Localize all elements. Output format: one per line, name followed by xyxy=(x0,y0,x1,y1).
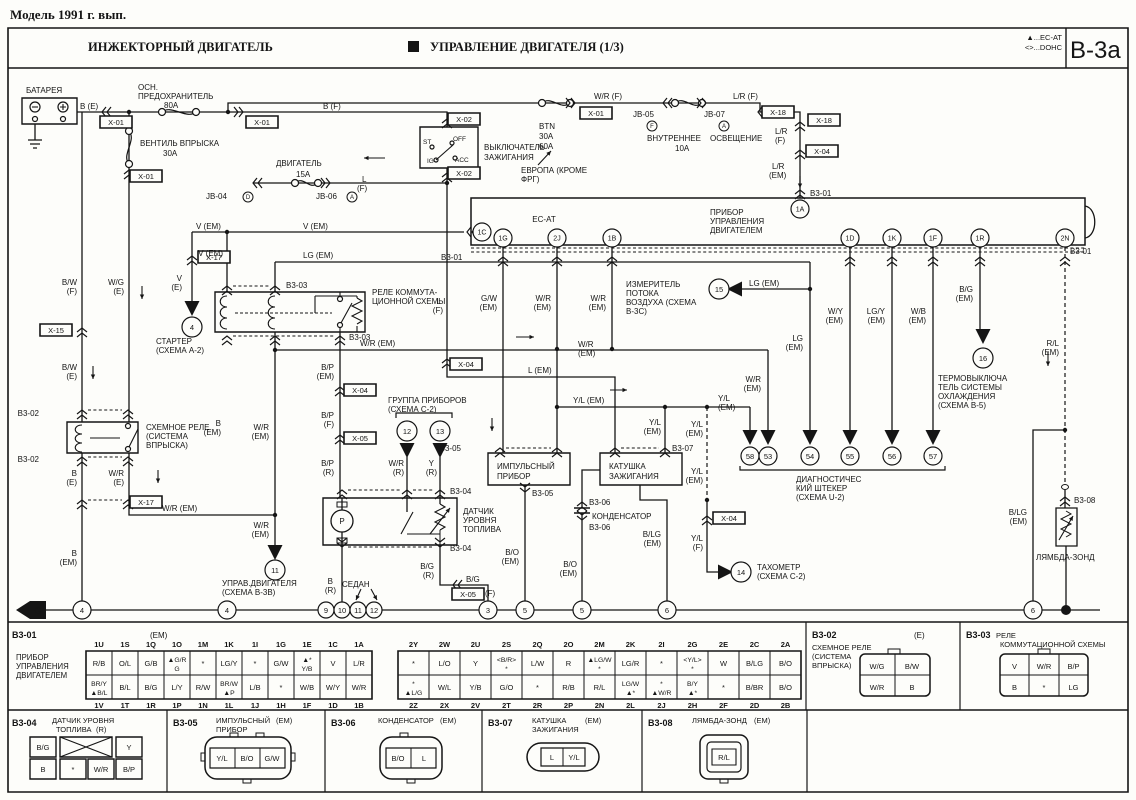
flow-triangle-icon xyxy=(843,430,858,445)
wire-label: (СХЕМА B-5) xyxy=(938,401,986,410)
pin-id: 2E xyxy=(719,640,728,649)
table-device-name: УПРАВЛЕНИЯ xyxy=(16,662,69,671)
pin-id: 1O xyxy=(172,640,182,649)
wire-color-cell: * xyxy=(660,659,663,668)
connector-pinout-tables: B3-01(EM)ПРИБОРУПРАВЛЕНИЯДВИГАТЕЛЕМ1U1S1… xyxy=(12,630,1106,783)
table-device-name: ИМПУЛЬСНЫЙ xyxy=(216,716,270,725)
wire-color-cell: Y/L xyxy=(216,754,227,763)
wire-label: 80A xyxy=(164,101,179,110)
table-device-name: ВПРЫСКА) xyxy=(812,661,852,670)
wire-color-cell: LG/W xyxy=(622,681,640,688)
wire-label: W/Y xyxy=(828,307,844,316)
wire-label: ВЕНТИЛЬ ВПРЫСКА xyxy=(140,139,220,148)
flow-triangle-icon xyxy=(743,430,758,445)
table-code: B3-04 xyxy=(12,718,37,728)
wire-label: ЕВРОПА (КРОМЕ xyxy=(521,166,587,175)
wire-color-cell: * xyxy=(412,659,415,668)
wire-color-cell: O/L xyxy=(119,659,131,668)
wire-label: JB-04 xyxy=(206,192,227,201)
wire-color-cell: L/B xyxy=(249,683,260,692)
wire-label: РЕЛЕ КОММУТА- xyxy=(372,288,438,297)
wire-label: (E) xyxy=(66,372,77,381)
wire-color-cell: R xyxy=(566,659,572,668)
ground-point-number: 4 xyxy=(225,606,229,615)
wire-label: EC-AT xyxy=(532,215,556,224)
wire-label: 30A xyxy=(539,132,554,141)
direction-arrow-icon xyxy=(140,294,144,299)
wire-label: (EM) xyxy=(252,432,270,441)
direction-arrow-icon xyxy=(91,374,95,379)
ecu-pin-label: 1B xyxy=(608,236,617,243)
junction-dot xyxy=(610,347,614,351)
ecu-pin-label: 1A xyxy=(796,207,805,214)
wire-label: Y xyxy=(429,459,435,468)
wire-label: (EM) xyxy=(480,303,498,312)
wire-label: ПРЕДОХРАНИТЕЛЬ xyxy=(138,92,213,101)
wire-label: (EM) xyxy=(769,171,787,180)
wire-label: (EM) xyxy=(686,476,704,485)
wire-label: B xyxy=(72,549,77,558)
wire-color-cell: ▲L/G xyxy=(405,690,423,697)
wire-color-cell: B xyxy=(909,683,914,692)
table-code: B3-02 xyxy=(812,630,837,640)
table-code: B3-07 xyxy=(488,718,513,728)
wire-label: 30A xyxy=(163,149,178,158)
wire-label: W/R xyxy=(253,423,269,432)
wire-color-cell: B/O xyxy=(392,754,405,763)
wire-color-cell: V xyxy=(330,659,335,668)
ecu-pin-label: 2N xyxy=(1061,236,1070,243)
junction-dot xyxy=(273,513,277,517)
pin-id: 1T xyxy=(121,701,130,710)
wire-label: P xyxy=(339,517,344,526)
wire-color-cell: LG/R xyxy=(622,659,640,668)
pin-id: 1C xyxy=(328,640,338,649)
wire-color-cell: ▲B/L xyxy=(91,690,108,697)
wire-label: B/G xyxy=(959,285,973,294)
resistor-icon xyxy=(352,298,362,324)
junction-dot xyxy=(705,498,709,502)
wire-label: B3-04 xyxy=(450,487,472,496)
wire-label: (E) xyxy=(171,283,182,292)
ecu-pin-label: 1C xyxy=(478,230,487,237)
wire-color-cell: BR/W xyxy=(220,681,238,688)
wire-label: Y/L xyxy=(718,394,731,403)
wire-label: LG xyxy=(792,334,803,343)
wire-label: G/W xyxy=(481,294,497,303)
table-suffix: (EM) xyxy=(276,716,293,725)
wire-color-cell: B/G xyxy=(145,683,158,692)
wire-label: (R) xyxy=(426,468,437,477)
wire-label: (EM) xyxy=(317,372,335,381)
wire-label: JB-06 xyxy=(316,192,337,201)
pin-id: 1R xyxy=(146,701,156,710)
wire-color-cell: G/O xyxy=(500,683,514,692)
wire-color-cell: B/P xyxy=(1067,662,1079,671)
inline-connector-label: X-04 xyxy=(721,514,737,523)
pin-id: 2A xyxy=(781,640,791,649)
ground-point-number: 4 xyxy=(80,606,84,615)
wire-label: (F) xyxy=(693,543,704,552)
legend-dohc: <>...DOHC xyxy=(1025,43,1063,52)
junction-block-letter: A xyxy=(350,195,354,201)
table-suffix: (EM) xyxy=(150,631,168,640)
wire-color-cell: * xyxy=(505,666,508,673)
junction-block-letter: A xyxy=(722,124,726,130)
ecu-pin-label: 1R xyxy=(976,236,985,243)
table-device-name: ПРИБОР xyxy=(16,653,49,662)
inline-connector-label: X-05 xyxy=(460,590,476,599)
wire-color-cell: R/B xyxy=(93,659,106,668)
flow-triangle-icon xyxy=(400,443,415,458)
wire-label: B3-04 xyxy=(450,544,472,553)
ground-point-number: 9 xyxy=(324,606,328,615)
junction-block-letter: F xyxy=(650,124,654,130)
wiring-diagram: Модель 1991 г. вып. ИНЖЕКТОРНЫЙ ДВИГАТЕЛ… xyxy=(0,0,1136,800)
direction-arrow-icon xyxy=(490,426,494,431)
wire-label: B3-03 xyxy=(286,281,308,290)
wire-label: B (F) xyxy=(323,102,341,111)
inline-connector-label: X-04 xyxy=(458,360,474,369)
ecu-pin-label: 1D xyxy=(846,236,855,243)
pin-id: 2C xyxy=(750,640,760,649)
wire-label: B3-06 xyxy=(589,523,611,532)
wire-color-cell: B/BR xyxy=(746,683,764,692)
wire-color-cell: B/O xyxy=(779,659,792,668)
pin-id: 1I xyxy=(252,640,258,649)
pin-id: 2J xyxy=(657,701,665,710)
wire-color-cell: B/O xyxy=(241,754,254,763)
wire-label: OFF xyxy=(453,136,466,143)
junction-dot xyxy=(663,405,667,409)
flow-triangle-icon xyxy=(761,430,776,445)
pin-id: 1A xyxy=(354,640,364,649)
pin-id: 1V xyxy=(94,701,103,710)
wire-color-cell: ▲LG/W xyxy=(587,657,612,664)
wire-color-cell: B/L xyxy=(119,683,130,692)
wire-label: B/LG xyxy=(1009,508,1027,517)
wire-label: B/P xyxy=(321,411,334,420)
wire-color-cell: ▲P xyxy=(223,690,235,697)
inline-connector-label: X-17 xyxy=(138,498,154,507)
wire-label: B (E) xyxy=(80,102,99,111)
scanned-wiring-diagram-page: Модель 1991 г. вып. ИНЖЕКТОРНЫЙ ДВИГАТЕЛ… xyxy=(0,0,1136,800)
wire-label: ДИАГНОСТИЧЕС xyxy=(796,475,862,484)
pin-id: 2W xyxy=(439,640,451,649)
wire-label: (EM) xyxy=(204,428,222,437)
wire-color-cell: G/W xyxy=(274,659,290,668)
wire-color-cell: L/Y xyxy=(171,683,182,692)
pin-id: 1E xyxy=(302,640,311,649)
connector-chevron-icon xyxy=(123,457,133,466)
wire-label: LG (EM) xyxy=(749,279,780,288)
table-suffix: (R) xyxy=(96,725,107,734)
wire-label: (СИСТЕМА xyxy=(146,432,189,441)
wire-color-cell: W xyxy=(720,659,728,668)
table-device-name: КОММУТАЦИОННОЙ СХЕМЫ xyxy=(1000,640,1106,649)
inline-connector-label: X-18 xyxy=(770,108,786,117)
wire-label: V xyxy=(177,274,183,283)
wire-label: (F) xyxy=(324,420,335,429)
wire-color-cell: L xyxy=(550,753,554,762)
ground-tag-label: G xyxy=(34,606,41,616)
pin-id: 1S xyxy=(120,640,129,649)
wire-color-cell: <Y/L> xyxy=(683,657,701,664)
table-device-name: ЗАЖИГАНИЯ xyxy=(532,725,579,734)
pin-id: 2K xyxy=(626,640,636,649)
wire-label: УРОВНЯ xyxy=(463,516,497,525)
direction-arrow-icon xyxy=(529,335,534,339)
wire-color-cell: <B/R> xyxy=(497,657,516,664)
table-device-name: СХЕМНОЕ РЕЛЕ xyxy=(812,643,872,652)
table-device-name: ДВИГАТЕЛЕМ xyxy=(16,671,67,680)
terminal-circle xyxy=(126,424,131,429)
pin-id: 2U xyxy=(471,640,481,649)
table-code: B3-06 xyxy=(331,718,356,728)
wire-label: (EM) xyxy=(1010,517,1028,526)
terminal-circle xyxy=(33,117,38,122)
wire-label: УПРАВЛЕНИЯ xyxy=(710,217,764,226)
wire-label: L (EM) xyxy=(528,366,552,375)
wire-label: B xyxy=(328,577,333,586)
wire-label: ТОПЛИВА xyxy=(463,525,502,534)
pin-id: 1U xyxy=(94,640,104,649)
inline-connector-label: X-01 xyxy=(138,172,154,181)
junction-dot xyxy=(555,405,559,409)
ecu-pin-label: 2J xyxy=(553,236,560,243)
wire-label: B/O xyxy=(563,560,577,569)
table-device-name: РЕЛЕ xyxy=(996,631,1016,640)
wire-label: Y/L (EM) xyxy=(573,396,605,405)
wire-color-cell: R/W xyxy=(196,683,212,692)
wire-label: W/R xyxy=(745,375,761,384)
wire-label: 10A xyxy=(675,144,690,153)
pin-id: 1M xyxy=(198,640,208,649)
wire-label: (EM) xyxy=(744,384,762,393)
wire-color-cell: * xyxy=(202,659,205,668)
wire-color-cell: B/LG xyxy=(746,659,763,668)
inline-connector-label: X-02 xyxy=(456,169,472,178)
wire-label: Y/L xyxy=(691,534,704,543)
wire-color-cell: W/R xyxy=(94,765,109,774)
wire-label: (EM) xyxy=(60,558,78,567)
junction-dot xyxy=(705,405,709,409)
wire-label: ИМПУЛЬСНЫЙ xyxy=(497,462,555,471)
wire-color-cell: G xyxy=(174,666,179,673)
wire-label: ПРИБОР xyxy=(710,208,744,217)
wire-label: ЗАЖИГАНИЯ xyxy=(609,472,659,481)
wire-label: (EM) xyxy=(252,530,270,539)
pin-id: 1P xyxy=(172,701,181,710)
wire-label: ДАТЧИК xyxy=(463,507,494,516)
table-device-name: ДАТЧИК УРОВНЯ xyxy=(52,716,114,725)
wire-color-cell: V xyxy=(1012,662,1017,671)
wire-label: (EM) xyxy=(786,343,804,352)
wire-label: (СХЕМА A-2) xyxy=(156,346,204,355)
wire-color-cell: B/P xyxy=(123,765,135,774)
wire-color-cell: Y/B xyxy=(302,666,313,673)
wire-color-cell: W/R xyxy=(352,683,367,692)
wire-label: B/W xyxy=(62,278,78,287)
wire-color-cell: Y xyxy=(126,743,131,752)
wire-color-cell: Y/B xyxy=(469,683,481,692)
wire-label: W/R (EM) xyxy=(162,504,197,513)
wire-color-cell: LG/Y xyxy=(220,659,237,668)
wire-label: ДВИГАТЕЛЕМ xyxy=(710,226,763,235)
wire-label: (EM) xyxy=(560,569,578,578)
ground-icon xyxy=(28,140,42,148)
wire-label: (EM) xyxy=(1042,348,1060,357)
section-title-center: УПРАВЛЕНИЕ ДВИГАТЕЛЯ (1/3) xyxy=(430,40,624,54)
wire-color-cell: L/O xyxy=(438,659,450,668)
wire-color-cell: * xyxy=(660,681,663,688)
wire-label: JB-07 xyxy=(704,110,725,119)
pin-id: 1Q xyxy=(146,640,156,649)
wire-color-cell: W/Y xyxy=(326,683,340,692)
pin-id: 2M xyxy=(594,640,604,649)
flow-triangle-icon xyxy=(268,545,283,560)
wire-label: B3-01 xyxy=(810,189,832,198)
wire-label: 15A xyxy=(296,170,311,179)
wire-label: (EM) xyxy=(868,316,886,325)
wire-label: B3-05 xyxy=(440,444,462,453)
wire-color-cell: R/L xyxy=(718,753,730,762)
wire-color-cell: ▲G/R xyxy=(168,657,187,664)
inline-connector-label: X-01 xyxy=(254,118,270,127)
ground-point-number: 11 xyxy=(354,606,362,615)
wire-label: (F) xyxy=(357,184,368,193)
wire-color-cell: ▲* xyxy=(626,690,636,697)
pin-id: 2N xyxy=(595,701,605,710)
ecu-pin-label: 1K xyxy=(888,236,897,243)
wire-label: (EM) xyxy=(718,403,736,412)
wire-label: W/R xyxy=(253,521,269,530)
wire-color-cell: * xyxy=(72,765,75,774)
wire-color-cell: G/W xyxy=(265,754,281,763)
wire-color-cell: ▲W/R xyxy=(652,690,672,697)
wire-label: КОНДЕНСАТОР xyxy=(592,512,652,521)
section-bullet xyxy=(408,41,419,52)
wire-label: (R) xyxy=(325,586,336,595)
junction-dot xyxy=(555,347,559,351)
wire-label: ОХЛАЖДЕНИЯ xyxy=(938,392,995,401)
inline-connector-label: X-02 xyxy=(456,115,472,124)
wire-label: СЕДАН xyxy=(342,580,370,589)
callout-number: 12 xyxy=(403,427,411,436)
inline-connector-label: X-01 xyxy=(108,118,124,127)
wire-label: B/LG xyxy=(643,530,661,539)
pin-id: 2T xyxy=(502,701,511,710)
pin-id: 2G xyxy=(687,640,697,649)
terminal-circle xyxy=(126,161,133,168)
junction-dot xyxy=(1063,428,1067,432)
wire xyxy=(315,292,357,332)
wire-label: ФРГ) xyxy=(521,175,540,184)
table-device-name: КОНДЕНСАТОР xyxy=(378,716,434,725)
wire-label: (E) xyxy=(66,478,77,487)
wire-label: ДВИГАТЕЛЬ xyxy=(276,159,322,168)
callout-number: 57 xyxy=(929,452,937,461)
pin-id: 2Y xyxy=(409,640,418,649)
wire-label: (EM) xyxy=(589,303,607,312)
terminal-circle xyxy=(338,297,343,302)
junction-block-letter: D xyxy=(246,195,251,201)
terminal-circle xyxy=(193,109,200,116)
wire-label: W/B xyxy=(911,307,926,316)
inline-connector-label: X-18 xyxy=(816,116,832,125)
wire-label: B/W xyxy=(62,363,78,372)
terminal-circle xyxy=(539,100,546,107)
wire-label: Y/L xyxy=(649,418,662,427)
pin-id: 1B xyxy=(354,701,364,710)
wire-color-cell: W/G xyxy=(870,662,885,671)
flow-triangle-icon xyxy=(885,430,900,445)
wire-label: (E) xyxy=(113,478,124,487)
wire-label: W/R (EM) xyxy=(360,339,395,348)
wire-label: ЦИОННОЙ СХЕМЫ xyxy=(372,297,445,306)
wire-label: ТАХОМЕТР xyxy=(757,563,800,572)
wire-label: W/R xyxy=(578,340,594,349)
wire-label: (F) xyxy=(67,287,78,296)
wire-color-cell: * xyxy=(1043,683,1046,692)
ground-point-number: 6 xyxy=(665,606,669,615)
relay-coil-icon xyxy=(75,425,82,452)
wire xyxy=(407,530,440,545)
table-suffix: (EM) xyxy=(585,716,602,725)
wire-color-cell: * xyxy=(254,659,257,668)
callout-number: 11 xyxy=(271,566,279,575)
ecu-pin-label: 1F xyxy=(929,236,937,243)
wire-label: B3-08 xyxy=(1074,496,1096,505)
wire-label: B3-02 xyxy=(18,455,40,464)
wire-label: B/P xyxy=(321,459,334,468)
wire-label: B/G xyxy=(466,575,480,584)
pin-id: 1L xyxy=(225,701,234,710)
table-device-name: (СИСТЕМА xyxy=(812,652,851,661)
junction-dot xyxy=(808,287,812,291)
junction-dot xyxy=(226,110,230,114)
wire-color-cell: BR/Y xyxy=(91,681,107,688)
wire-label: B xyxy=(216,419,221,428)
pin-id: 2Q xyxy=(532,640,542,649)
wire-label: ВОЗДУХА (СХЕМА xyxy=(626,298,697,307)
callout-number: 15 xyxy=(715,285,723,294)
wire-color-cell: W/R xyxy=(870,683,885,692)
wire-label: W/R (F) xyxy=(594,92,622,101)
wire-label: LG/Y xyxy=(867,307,886,316)
pin-id: 1N xyxy=(198,701,208,710)
table-device-name: ТОПЛИВА xyxy=(56,725,92,734)
wire-label: ВПРЫСКА) xyxy=(146,441,188,450)
wire-label: (СХЕМА C-2) xyxy=(388,405,437,414)
junction-dot xyxy=(127,110,131,114)
callout-number: 16 xyxy=(979,354,987,363)
wire-color-cell: * xyxy=(536,683,539,692)
pin-id: 2L xyxy=(626,701,635,710)
terminal-circle xyxy=(292,180,299,187)
wire-color-cell: LG xyxy=(1068,683,1078,692)
pin-id: 2B xyxy=(781,701,791,710)
junction-dot xyxy=(273,348,277,352)
wire-label: W/R xyxy=(108,469,124,478)
wire xyxy=(129,429,138,447)
terminal-circle xyxy=(315,180,322,187)
callout-number: 54 xyxy=(806,452,814,461)
junction-dot xyxy=(1061,605,1071,615)
wire-label: ТЕРМОВЫКЛЮЧА xyxy=(938,374,1008,383)
wire-label: V (EM) xyxy=(196,222,221,231)
pin-id: 2F xyxy=(719,701,728,710)
